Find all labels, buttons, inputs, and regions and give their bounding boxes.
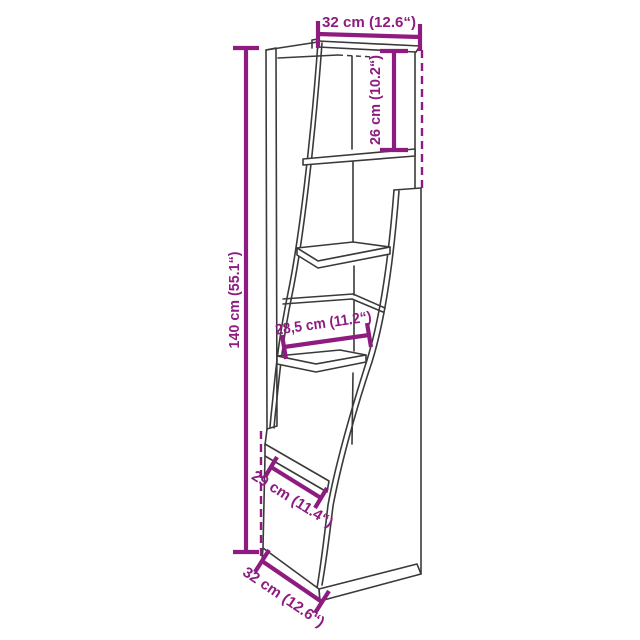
base-front-right	[319, 564, 421, 601]
dimension-line	[318, 34, 420, 37]
top-left-edge	[266, 42, 318, 50]
dimension-line	[284, 335, 369, 347]
top-interior-edge	[278, 55, 338, 58]
right-step-edge	[394, 188, 421, 190]
dimension-upper-compartment-height: 26 cm (10.2“)	[367, 51, 408, 150]
dimension-label: 32 cm (12.6“)	[322, 14, 416, 31]
diagram-canvas: 32 cm (12.6“) 26 cm (10.2“) 140 cm (55.1…	[0, 0, 640, 640]
dimension-label: 140 cm (55.1“)	[226, 252, 243, 349]
corner-shelf-dimension-diagram: 32 cm (12.6“) 26 cm (10.2“) 140 cm (55.1…	[0, 0, 640, 640]
dimension-label: 26 cm (10.2“)	[367, 55, 384, 145]
